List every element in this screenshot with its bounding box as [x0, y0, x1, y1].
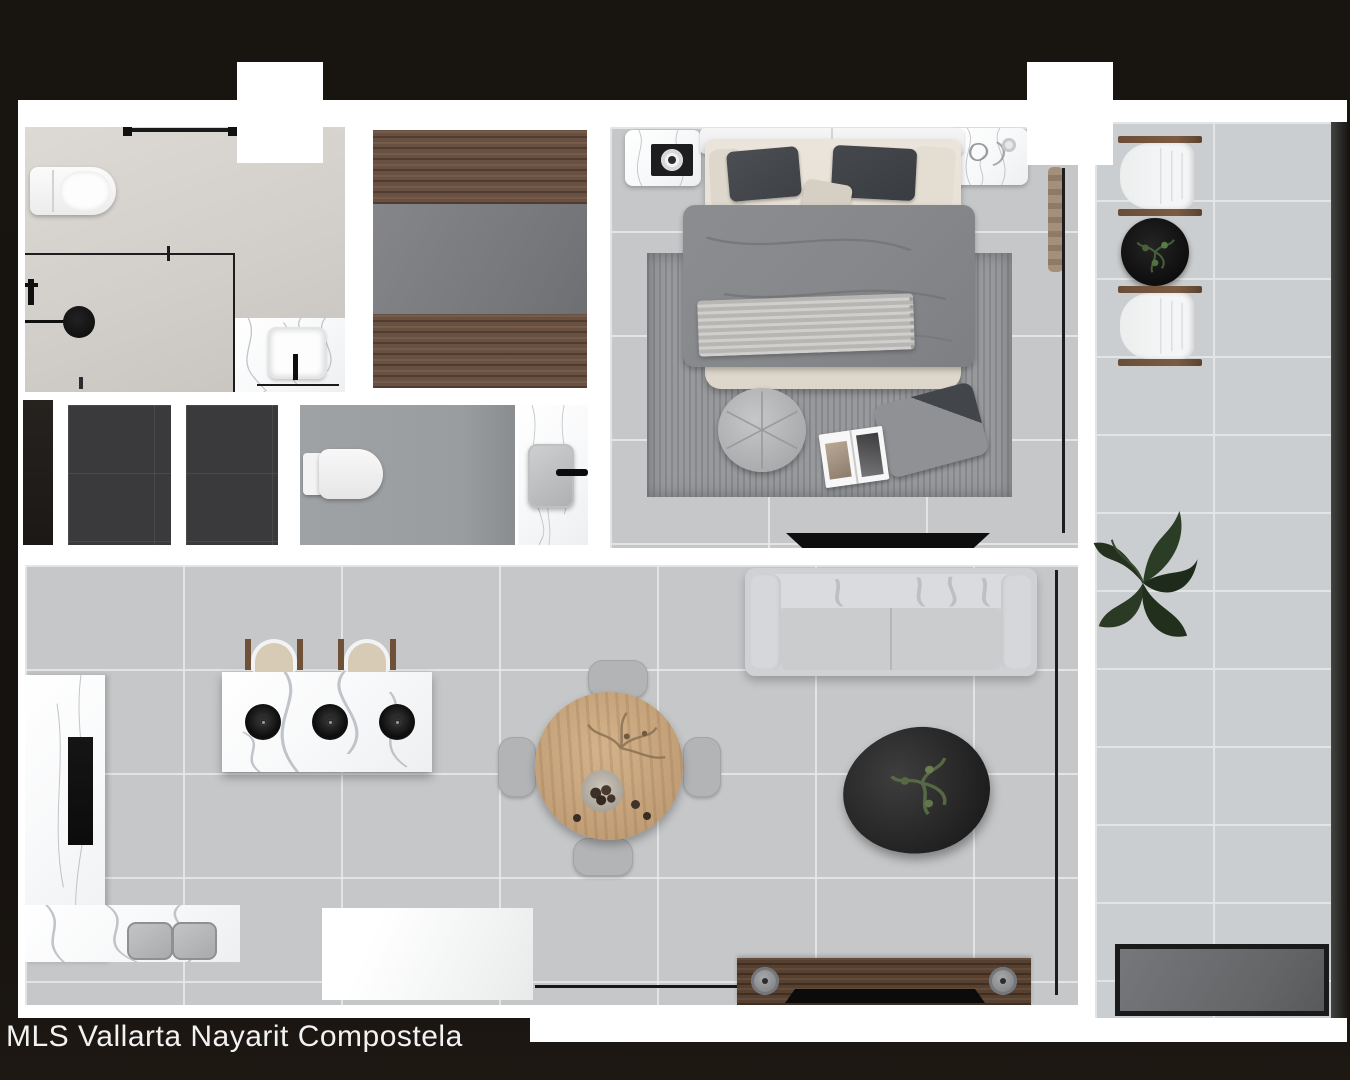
sofa-seat: [781, 608, 1001, 670]
powder-toilet-bowl: [319, 449, 383, 499]
towel-bar-end-right: [228, 127, 237, 136]
chair-cushion-lines: [1120, 293, 1194, 359]
entry-landing: [322, 908, 533, 1000]
towel-bar-end-left: [123, 127, 132, 136]
chair-armrest-top: [1118, 136, 1202, 143]
speaker-center: [762, 978, 768, 984]
closet-lower-shelf: [373, 314, 587, 388]
cooktop: [68, 737, 93, 845]
watermark-text: MLS Vallarta Nayarit Compostela: [6, 1020, 463, 1054]
powder-toilet: [303, 448, 385, 500]
fruit-bowl: [581, 770, 623, 812]
burner-center: [260, 719, 267, 726]
balcony-side-table: [1121, 218, 1189, 286]
chair-armrest-top: [1118, 286, 1202, 293]
powder-faucet: [556, 469, 588, 476]
closet-upper-shelf: [373, 130, 587, 204]
bedroom-curtain: [1048, 167, 1063, 272]
powder-vanity: [518, 405, 588, 545]
camera-decor: [661, 149, 683, 171]
kitchen-counter-bottom: [25, 905, 240, 962]
living-kitchen-dining: [25, 565, 1078, 1005]
bottom-right-wall: [530, 1016, 1347, 1042]
hall-storage-closet-1: [68, 405, 171, 545]
entry-threshold: [535, 985, 742, 988]
centerpiece-branches: [535, 692, 683, 840]
console-tv: [785, 989, 985, 1003]
chair-shell: [1120, 293, 1194, 359]
bathroom: [25, 127, 345, 392]
chair-armrest-bottom: [1118, 359, 1202, 366]
dining-chair-east: [683, 737, 721, 797]
scattered-berry-2: [643, 812, 651, 820]
lounge-chair-2: [1118, 286, 1202, 366]
knit-throw: [697, 293, 915, 357]
shower-mixer-crossbar: [25, 283, 38, 287]
coffee-table: [830, 712, 1003, 870]
sofa-back-cushion: [755, 574, 1027, 608]
vanity-faucet: [293, 354, 298, 380]
nightstand-cup: [1002, 138, 1016, 152]
bathroom-vanity: [235, 318, 345, 392]
sofa-seat-split: [890, 608, 892, 670]
round-pouf: [718, 388, 806, 472]
bedroom: [610, 127, 1078, 548]
sofa-arm-right: [1001, 574, 1031, 670]
sofa-folds: [755, 574, 1027, 608]
burner-center: [327, 719, 334, 726]
bedroom-glass-wall: [1062, 168, 1065, 533]
shower-glass-handle: [167, 246, 170, 261]
camera-lens: [668, 156, 676, 164]
chair-armrest-bottom: [1118, 209, 1202, 216]
scattered-berry-3: [573, 814, 581, 822]
toilet-bowl: [60, 171, 110, 211]
pouf-seams: [718, 388, 806, 472]
island-burner-2: [312, 704, 348, 740]
bar-stool-1: [245, 639, 303, 672]
towel-bar: [125, 128, 235, 132]
shower-head: [63, 306, 95, 338]
dining-table: [535, 692, 683, 840]
floor-drain: [79, 377, 83, 389]
wall-pillar-left: [237, 62, 323, 163]
berries: [581, 770, 623, 812]
speaker-right: [989, 967, 1017, 995]
stool-rail-right: [297, 639, 303, 670]
lounge-chair-1: [1118, 136, 1202, 216]
speaker-left: [751, 967, 779, 995]
speaker-center: [1000, 978, 1006, 984]
chair-cushion-lines: [1120, 143, 1194, 209]
bar-stool-2: [338, 639, 396, 672]
island-burner-1: [245, 704, 281, 740]
toilet: [30, 167, 116, 215]
chair-shell: [1120, 143, 1194, 209]
open-magazine: [819, 426, 890, 488]
magazine-photo-right: [856, 432, 884, 477]
dining-chair-west: [498, 737, 536, 797]
kitchen-island: [222, 672, 432, 772]
kitchen-sink-right: [172, 922, 217, 960]
outdoor-mat: [1115, 944, 1329, 1016]
powder-basin: [528, 444, 574, 508]
closet-hanging-panel: [373, 204, 587, 314]
vanity-edge-line: [257, 384, 339, 386]
large-floor-plant: [1078, 495, 1208, 655]
walk-in-closet: [373, 130, 587, 388]
dining-chair-south: [573, 838, 633, 876]
shower-glass-horizontal: [25, 253, 235, 255]
nightstand-left: [625, 130, 701, 186]
scattered-berry-1: [631, 800, 640, 809]
bedroom-wall-tv: [786, 533, 990, 548]
island-burner-3: [379, 704, 415, 740]
stool-seat: [344, 639, 390, 672]
media-console: [737, 958, 1031, 1005]
hall-storage-closet-2: [186, 405, 278, 545]
sofa-arm-left: [751, 574, 781, 670]
toilet-tank-line: [52, 170, 54, 212]
stool-rail-right: [390, 639, 396, 670]
balcony-railing: [1331, 122, 1347, 1018]
hall-door-panel: [23, 400, 53, 545]
potted-plant: [1121, 218, 1189, 286]
wall-pillar-right: [1027, 62, 1113, 165]
dark-pillow-left: [726, 146, 802, 202]
burner-center: [394, 719, 401, 726]
stool-seat: [251, 639, 297, 672]
magazine-photo-left: [825, 441, 852, 480]
living-glass-wall: [1055, 570, 1058, 995]
kitchen-sink-left: [127, 922, 173, 960]
shower-mixer: [28, 279, 34, 305]
floor-plan-canvas: MLS Vallarta Nayarit Compostela: [0, 0, 1350, 1080]
coffee-table-plant-sprig: [830, 712, 1003, 870]
sofa: [745, 568, 1037, 676]
